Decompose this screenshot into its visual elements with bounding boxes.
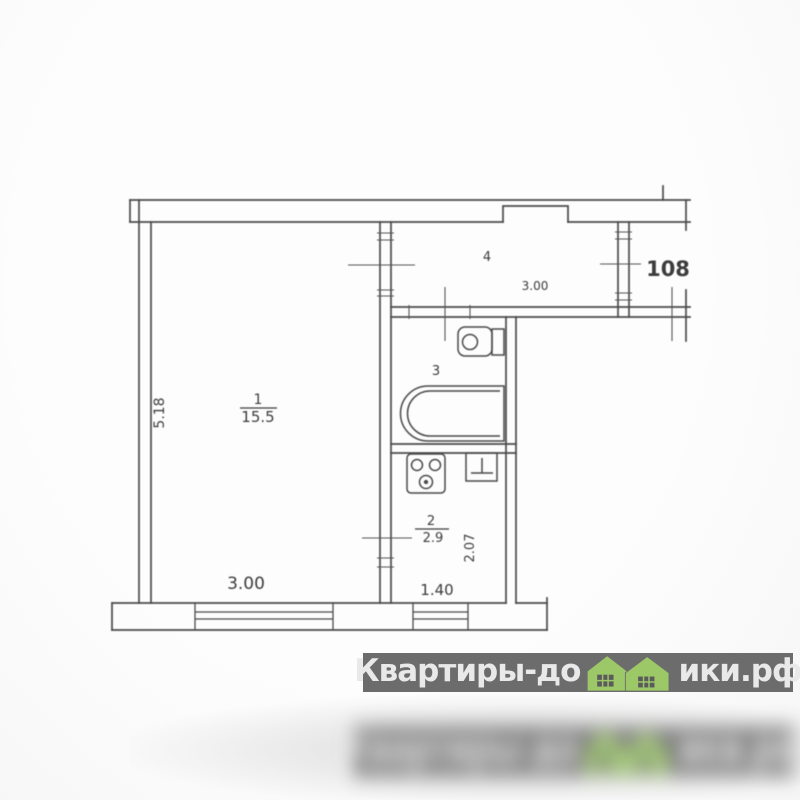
apartment-number: 108 — [646, 257, 690, 281]
bathtub — [401, 386, 505, 441]
watermark-banner: Квартиры-до ики.рф — [363, 653, 793, 692]
room2-number: 2 — [427, 514, 435, 529]
niche — [503, 206, 568, 222]
room3-number: 3 — [432, 364, 440, 379]
sink — [466, 453, 497, 481]
window-living-room — [195, 603, 333, 630]
watermark-text-right: ики.рф — [678, 656, 800, 687]
watermark-blurred-copy: Квартиры-до ики.рф — [345, 720, 800, 785]
room1-area: 15.5 — [241, 408, 274, 426]
room4-width-dim: 3.00 — [522, 279, 549, 293]
room2-width-dim: 1.40 — [420, 581, 453, 599]
window-symbols — [195, 603, 468, 630]
houses-icon — [579, 727, 678, 776]
fixtures — [401, 327, 505, 493]
watermark-text-left: Квартиры-до — [354, 656, 580, 687]
room4-number: 4 — [483, 250, 491, 265]
window-kitchen — [413, 603, 468, 630]
room1-depth-dim: 5.18 — [152, 397, 168, 428]
room1-width-dim: 3.00 — [227, 574, 265, 594]
room1-number: 1 — [254, 392, 263, 408]
toilet — [458, 327, 504, 356]
watermark-text-right-blur: ики.рф — [679, 731, 800, 770]
watermark-text-left-blur: Квартиры-до — [345, 731, 578, 770]
labels: 1 15.5 3.00 5.18 2 2.9 1.40 2.07 3 4 3.0… — [152, 250, 690, 599]
room2-depth-dim: 2.07 — [463, 534, 478, 563]
stove — [407, 454, 445, 493]
houses-icon — [581, 653, 677, 692]
room2-area: 2.9 — [423, 531, 444, 546]
scanned-floor-plan-page: 1 15.5 3.00 5.18 2 2.9 1.40 2.07 3 4 3.0… — [0, 0, 800, 800]
door-opening-marks — [348, 232, 672, 567]
